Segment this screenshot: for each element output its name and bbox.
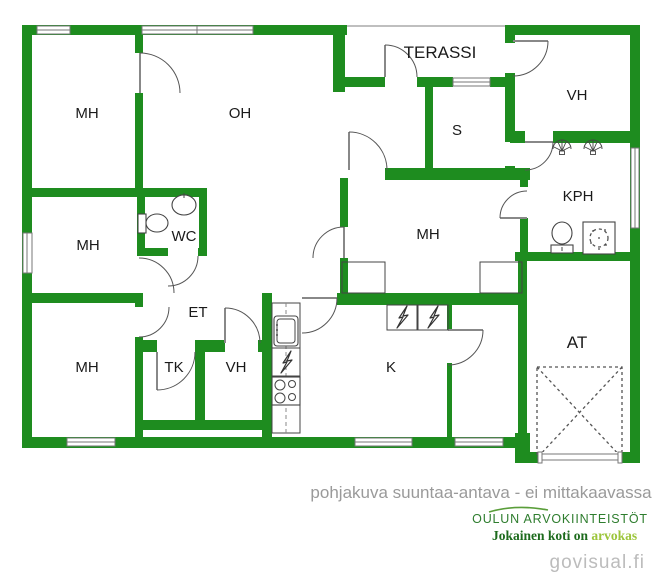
company-name: OULUN ARVOKIINTEISTÖT — [472, 512, 648, 526]
outer-walls — [22, 25, 640, 463]
mh-center-wardrobes — [342, 262, 522, 293]
door-mh-center-east — [500, 191, 527, 218]
appliance-icon — [387, 305, 417, 330]
door-mh-bottom-left — [139, 307, 169, 337]
room-label-k: K — [386, 359, 396, 376]
room-label-mh-mid-left: MH — [76, 237, 99, 254]
toilet-icon — [138, 214, 168, 233]
room-label-kph: KPH — [563, 188, 594, 205]
door-utility — [448, 330, 483, 365]
shower-head-icon — [553, 140, 571, 155]
stove-icon — [272, 377, 300, 405]
room-label-mh-top-left: MH — [75, 105, 98, 122]
door-mh-top-left — [140, 53, 180, 93]
floor-drain-icon — [583, 222, 615, 254]
door-vh-bottom — [225, 308, 260, 343]
slogan-accent-part: arvokas — [591, 528, 637, 543]
watermark-text: govisual.fi — [550, 552, 646, 573]
shower-head-icon — [584, 140, 602, 155]
room-label-wc: WC — [172, 228, 197, 245]
door-mh-center-north — [349, 132, 387, 170]
room-label-oh: OH — [229, 105, 252, 122]
disclaimer-text: pohjakuva suuntaa-antava - ei mittakaava… — [310, 483, 652, 502]
door-mh-mid-left — [139, 258, 174, 293]
footer: pohjakuva suuntaa-antava - ei mittakaava… — [310, 483, 652, 573]
floor-plan-page: MH OH TERASSI VH S MH WC KPH MH ET MH TK… — [0, 0, 658, 580]
door-mh-center-west — [313, 227, 344, 258]
interior-walls — [22, 30, 640, 448]
windows — [23, 26, 639, 446]
appliance-icon — [418, 305, 448, 330]
room-label-at: AT — [567, 333, 587, 352]
car-space-marking — [537, 367, 622, 458]
slogan: Jokainen koti on arvokas — [492, 528, 637, 543]
slogan-dark-part: Jokainen koti on — [492, 528, 591, 543]
kitchen-sink-icon — [274, 316, 298, 346]
door-vh-terassi — [513, 41, 548, 76]
room-label-mh-center: MH — [416, 226, 439, 243]
kitchen-fixtures — [272, 303, 448, 433]
garage-door — [538, 452, 622, 463]
wc-fixtures — [138, 193, 196, 233]
room-label-sauna: S — [452, 122, 462, 139]
garage-fixtures — [537, 367, 622, 463]
room-labels: MH OH TERASSI VH S MH WC KPH MH ET MH TK… — [75, 43, 593, 376]
room-label-vh-top: VH — [567, 87, 588, 104]
room-label-tk: TK — [164, 359, 183, 376]
floor-plan-drawing: MH OH TERASSI VH S MH WC KPH MH ET MH TK… — [0, 0, 658, 580]
toilet-icon — [551, 222, 573, 253]
room-label-mh-bottom-left: MH — [75, 359, 98, 376]
room-label-vh-bottom: VH — [226, 359, 247, 376]
door-kitchen — [302, 298, 337, 333]
room-label-terassi: TERASSI — [404, 43, 477, 62]
room-label-et: ET — [188, 304, 207, 321]
door-kph — [525, 142, 553, 170]
